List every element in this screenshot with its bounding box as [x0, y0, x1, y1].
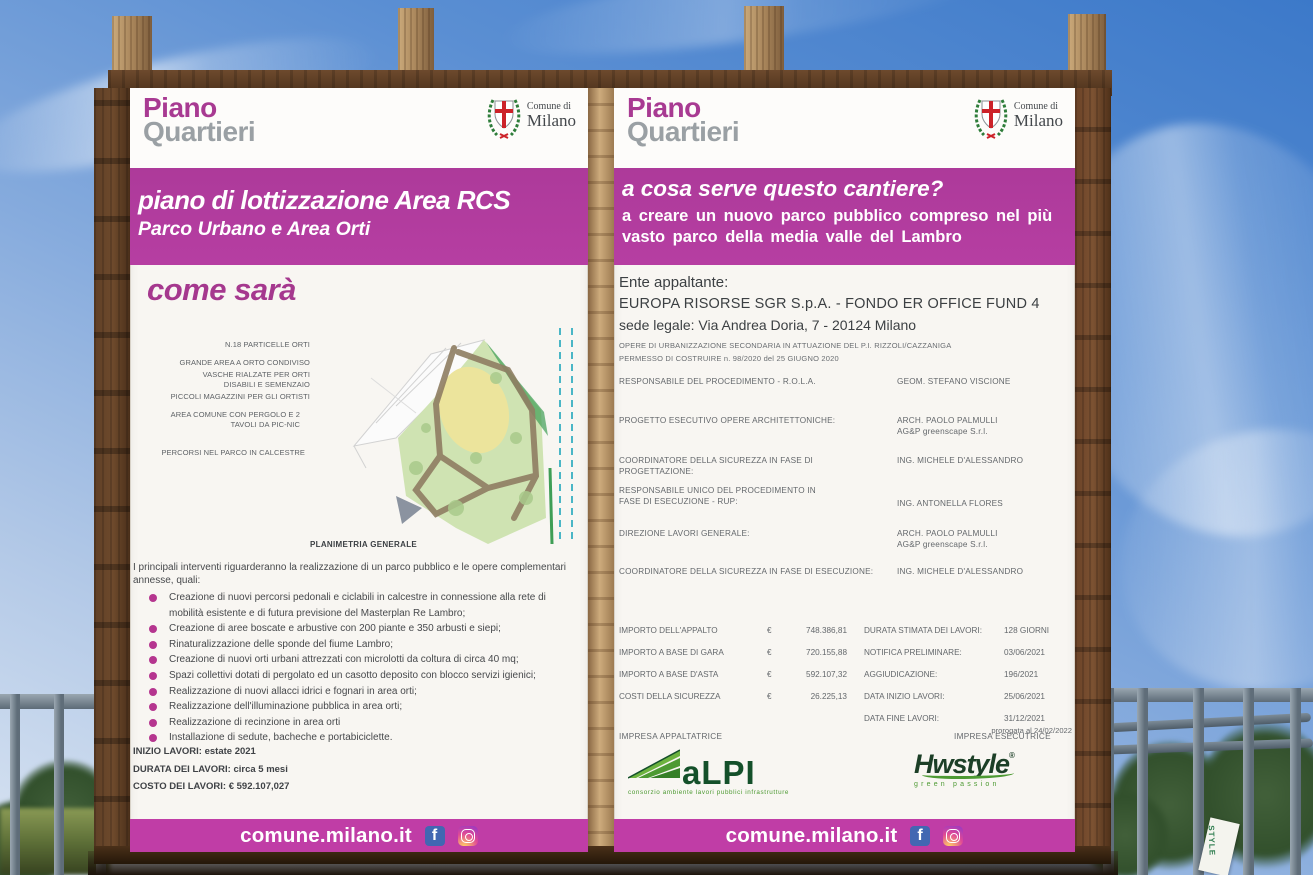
list-item: Spazi collettivi dotati di pergolato ed …: [133, 668, 578, 684]
map-annotation: PERCORSI NEL PARCO IN CALCESTRE: [150, 448, 305, 458]
trademark-symbol: ®: [1009, 751, 1014, 760]
hwstyle-logo-text: Hwstyle®: [914, 752, 1074, 776]
site-plan-map: [336, 318, 578, 544]
board-header: Piano Quartieri Comune di Milano: [130, 88, 588, 169]
alpi-tagline: consorzio ambiente lavori pubblici infra…: [628, 789, 838, 796]
interventions-intro: I principali interventi riguarderanno la…: [133, 561, 578, 587]
construction-site-photo: STYLE Piano Quartieri: [0, 0, 1313, 875]
piano-quartieri-logo: Piano Quartieri: [627, 96, 739, 144]
comune-milano-block: Comune di Milano: [973, 96, 1063, 140]
map-annotation: PICCOLI MAGAZZINI PER GLI ORTISTI: [140, 392, 310, 402]
map-annotation: GRANDE AREA A ORTO CONDIVISO: [160, 358, 310, 368]
brand-line2: Quartieri: [627, 120, 739, 144]
client-address: sede legale: Via Andrea Doria, 7 - 20124…: [619, 317, 1040, 333]
map-annotation: VASCHE RIALZATE PER ORTI DISABILI E SEME…: [172, 370, 310, 390]
purpose-answer-line2: vasto parco della media valle del Lambro: [622, 227, 1069, 248]
purpose-question: a cosa serve questo cantiere?: [622, 176, 1075, 202]
executor-label: IMPRESA ESECUTRICE: [954, 732, 1051, 741]
instagram-icon[interactable]: [943, 826, 963, 846]
client-name: EUROPA RISORSE SGR S.p.A. - FONDO ER OFF…: [619, 296, 1040, 312]
wood-post-right: [1075, 88, 1111, 860]
comune-milano-crest-icon: [486, 96, 522, 140]
works-cost: COSTO DEI LAVORI: € 592.107,027: [133, 778, 289, 796]
client-label: Ente appaltante:: [619, 274, 1040, 291]
wood-post-left: [94, 88, 132, 860]
works-facts: INIZIO LAVORI: estate 2021 DURATA DEI LA…: [133, 743, 289, 796]
interventions-list: Creazione di nuovi percorsi pedonali e c…: [133, 590, 578, 746]
contractor-label: IMPRESA APPALTATRICE: [619, 732, 722, 741]
list-item: Creazione di aree boscate e arbustive co…: [133, 621, 578, 637]
comune-milano-crest-icon: [973, 96, 1009, 140]
hwstyle-logo: Hwstyle® green passion: [914, 752, 1074, 788]
alpi-logo-icon: [628, 748, 680, 786]
works-duration: DURATA DEI LAVORI: circa 5 mesi: [133, 761, 289, 779]
purpose-answer-line1: a creare un nuovo parco pubblico compres…: [622, 206, 1069, 227]
board-subtitle: Parco Urbano e Area Orti: [138, 218, 588, 241]
works-start: INIZIO LAVORI: estate 2021: [133, 743, 289, 761]
banner-text: STYLE: [1207, 825, 1217, 856]
wood-post-center: [588, 88, 614, 860]
map-annotation: N.18 PARTICELLE ORTI: [160, 340, 310, 350]
list-item: Creazione di nuovi orti urbani attrezzat…: [133, 652, 578, 668]
title-band: piano di lottizzazione Area RCS Parco Ur…: [130, 168, 588, 265]
website-url[interactable]: comune.milano.it: [240, 824, 412, 848]
piano-quartieri-logo: Piano Quartieri: [143, 96, 255, 144]
client-block: Ente appaltante: EUROPA RISORSE SGR S.p.…: [619, 274, 1040, 367]
list-item: Realizzazione dell'illuminazione pubblic…: [133, 699, 578, 715]
client-note: OPERE DI URBANIZZAZIONE SECONDARIA IN AT…: [619, 341, 1040, 350]
left-info-board: Piano Quartieri Comune di Milano: [130, 88, 588, 852]
hwstyle-tagline: green passion: [914, 781, 1074, 788]
facebook-icon[interactable]: [425, 826, 445, 846]
purpose-band: a cosa serve questo cantiere? a creare u…: [614, 168, 1075, 265]
instagram-icon[interactable]: [458, 826, 478, 846]
wood-post-top: [744, 6, 784, 80]
list-item: Creazione di nuovi percorsi pedonali e c…: [133, 590, 578, 621]
comune-milano-block: Comune di Milano: [486, 96, 576, 140]
right-info-board: Piano Quartieri Comune di Milano: [614, 88, 1075, 852]
website-url[interactable]: comune.milano.it: [726, 824, 898, 848]
board-footer: comune.milano.it: [130, 819, 588, 852]
board-title: piano di lottizzazione Area RCS: [138, 185, 588, 216]
section-heading: come sarà: [147, 272, 296, 308]
brand-line2: Quartieri: [143, 120, 255, 144]
map-annotation: AREA COMUNE CON PERGOLO E 2 TAVOLI DA PI…: [170, 410, 300, 430]
alpi-logo-text: aLPI: [682, 760, 756, 786]
interventions-block: I principali interventi riguarderanno la…: [133, 561, 578, 746]
list-item: Realizzazione di nuovi allacci idrici e …: [133, 684, 578, 700]
facebook-icon[interactable]: [910, 826, 930, 846]
client-note: PERMESSO DI COSTRUIRE n. 98/2020 del 25 …: [619, 354, 1040, 363]
board-header: Piano Quartieri Comune di Milano: [614, 88, 1075, 169]
list-item: Rinaturalizzazione delle sponde del fium…: [133, 637, 578, 653]
alpi-logo: aLPI consorzio ambiente lavori pubblici …: [628, 748, 838, 796]
list-item: Realizzazione di recinzione in area orti: [133, 715, 578, 731]
comune-milano-label: Comune di Milano: [527, 96, 576, 130]
map-caption: PLANIMETRIA GENERALE: [310, 540, 417, 549]
comune-milano-label: Comune di Milano: [1014, 96, 1063, 130]
board-footer: comune.milano.it: [614, 819, 1075, 852]
